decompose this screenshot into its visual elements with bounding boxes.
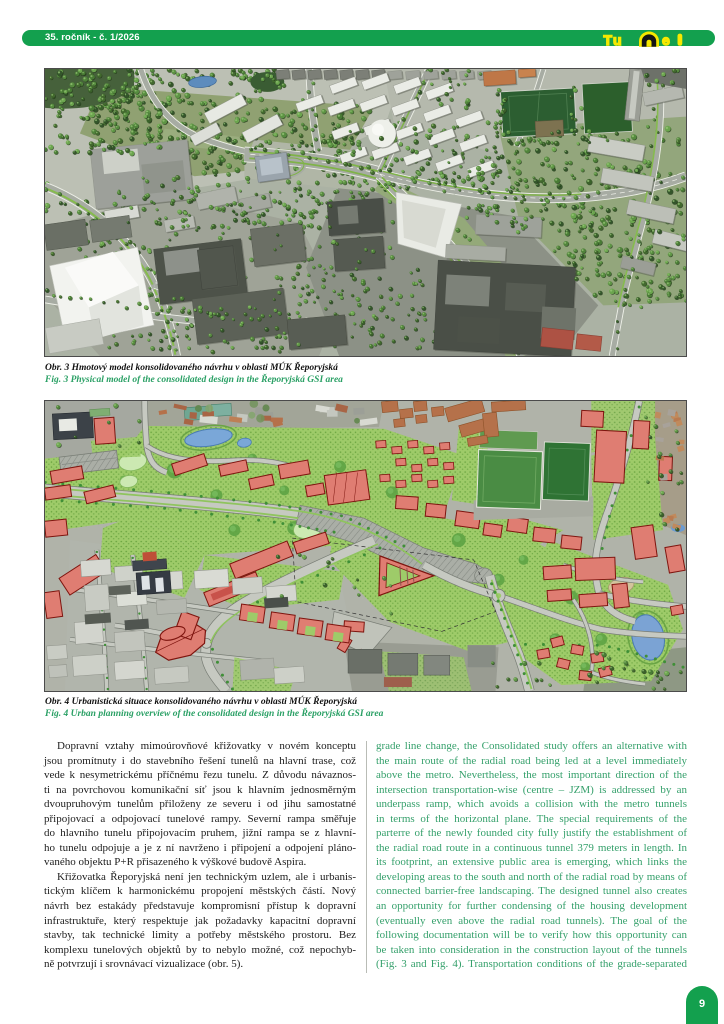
svg-text:e: e — [662, 32, 670, 48]
svg-text:Tu: Tu — [604, 32, 624, 48]
